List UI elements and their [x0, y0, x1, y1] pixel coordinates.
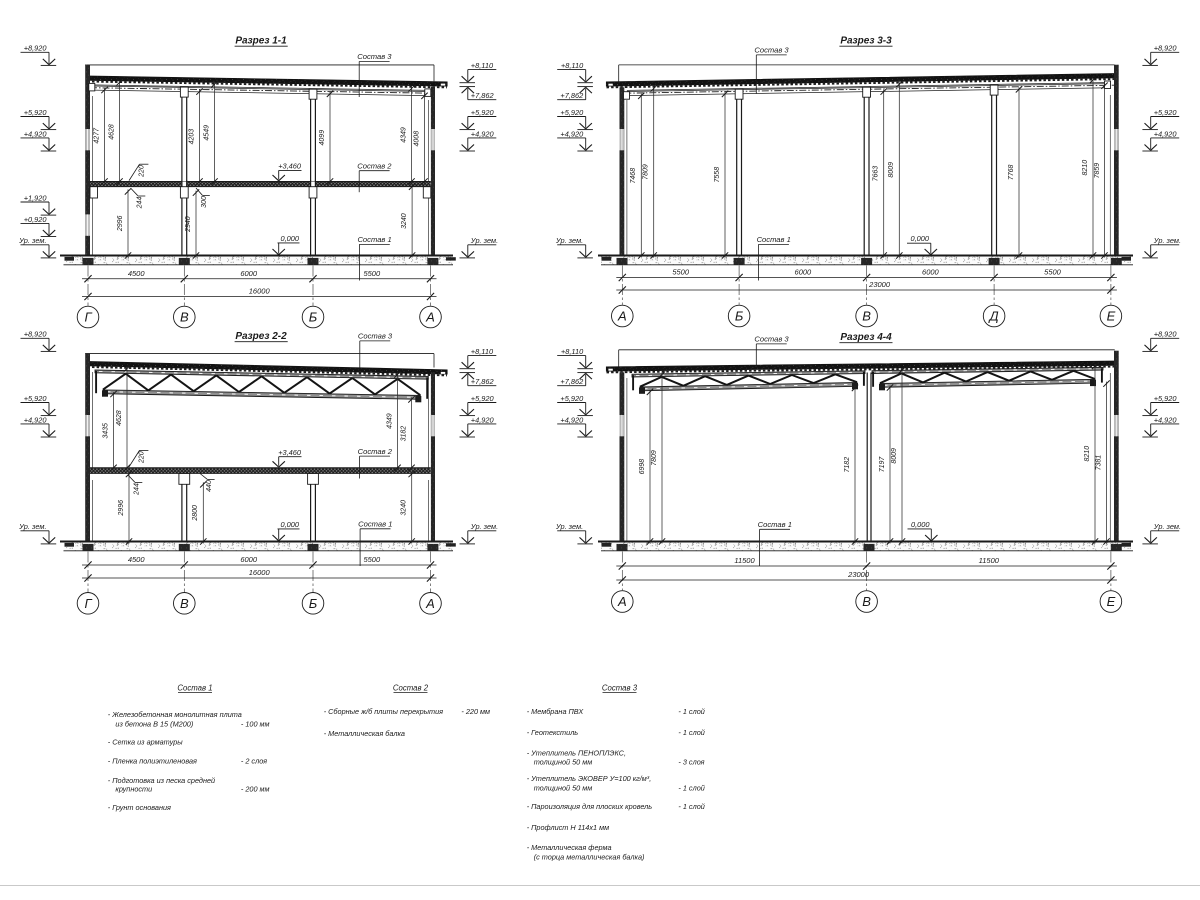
svg-text:4099: 4099 [319, 130, 326, 146]
svg-text:+8,920: +8,920 [1154, 44, 1178, 53]
svg-text:+8,110: +8,110 [471, 61, 494, 70]
svg-text:В: В [862, 594, 871, 609]
svg-text:+5,920: +5,920 [471, 108, 495, 117]
svg-text:0,000: 0,000 [911, 234, 930, 243]
svg-text:244: 244 [134, 483, 141, 496]
svg-text:2996: 2996 [118, 500, 125, 517]
svg-text:толщиной 50 мм: толщиной 50 мм [534, 758, 593, 767]
svg-text:Состав 1: Состав 1 [758, 520, 792, 529]
svg-text:16000: 16000 [249, 287, 271, 296]
svg-text:3182: 3182 [400, 426, 407, 442]
svg-text:Ур. зем.: Ур. зем. [555, 236, 583, 245]
svg-text:+5,920: +5,920 [471, 394, 495, 403]
svg-text:Д: Д [988, 309, 999, 324]
svg-text:+5,920: +5,920 [24, 394, 48, 403]
svg-text:Ур. зем.: Ур. зем. [1153, 236, 1181, 245]
svg-text:- Геотекстиль: - Геотекстиль [527, 728, 579, 737]
svg-text:Разрез 2-2: Разрез 2-2 [235, 331, 287, 342]
svg-text:+7,862: +7,862 [560, 91, 583, 100]
svg-text:+8,110: +8,110 [561, 61, 584, 70]
svg-text:- 100 мм: - 100 мм [241, 720, 270, 729]
svg-text:Ур. зем.: Ур. зем. [1153, 522, 1181, 531]
svg-text:Разрез 1-1: Разрез 1-1 [235, 36, 287, 47]
svg-text:- 200 мм: - 200 мм [241, 785, 270, 794]
svg-text:Состав 1: Состав 1 [757, 235, 791, 244]
svg-text:- Утеплитель ЭКОВЕР У=100 кг/м: - Утеплитель ЭКОВЕР У=100 кг/м³, [527, 774, 652, 783]
svg-text:+8,920: +8,920 [24, 44, 48, 53]
svg-text:6000: 6000 [795, 268, 813, 277]
svg-text:Б: Б [309, 310, 318, 325]
svg-text:+8,920: +8,920 [1154, 330, 1178, 339]
svg-text:+8,110: +8,110 [471, 347, 494, 356]
svg-text:+5,920: +5,920 [1154, 108, 1178, 117]
svg-text:7768: 7768 [1008, 165, 1015, 181]
svg-text:440: 440 [206, 480, 213, 492]
svg-text:3240: 3240 [401, 213, 408, 229]
svg-text:- 1 слой: - 1 слой [678, 802, 704, 811]
svg-text:+7,862: +7,862 [560, 377, 583, 386]
svg-text:+7,862: +7,862 [471, 377, 494, 386]
svg-text:244: 244 [137, 197, 144, 210]
svg-text:А: А [425, 596, 435, 611]
svg-text:23000: 23000 [847, 570, 870, 579]
svg-text:6000: 6000 [922, 268, 940, 277]
svg-text:+5,920: +5,920 [560, 394, 584, 403]
svg-text:Состав 1: Состав 1 [358, 520, 392, 529]
svg-text:4008: 4008 [413, 131, 420, 147]
svg-text:А: А [617, 309, 627, 324]
svg-text:7663: 7663 [873, 166, 880, 182]
svg-text:+5,920: +5,920 [24, 108, 48, 117]
svg-text:7468: 7468 [630, 168, 637, 184]
svg-text:4500: 4500 [128, 555, 146, 564]
svg-text:Б: Б [735, 309, 744, 324]
svg-text:толщиной 50 мм: толщиной 50 мм [534, 783, 593, 792]
svg-text:Е: Е [1107, 309, 1116, 324]
svg-text:8210: 8210 [1084, 446, 1091, 462]
svg-text:- Пленка полиэтиленовая: - Пленка полиэтиленовая [108, 757, 197, 766]
svg-text:Состав 3: Состав 3 [754, 335, 789, 344]
svg-text:11500: 11500 [979, 556, 1000, 565]
svg-text:- Мембрана ПВХ: - Мембрана ПВХ [527, 707, 585, 716]
svg-text:+0,920: +0,920 [24, 215, 48, 224]
svg-text:0,000: 0,000 [281, 520, 300, 529]
svg-text:- Металлическая балка: - Металлическая балка [324, 729, 405, 738]
svg-text:220: 220 [139, 451, 146, 464]
svg-text:8210: 8210 [1082, 160, 1089, 176]
svg-text:+3,460: +3,460 [278, 448, 302, 457]
svg-text:+7,862: +7,862 [471, 91, 494, 100]
svg-text:- 3 слоя: - 3 слоя [678, 758, 704, 767]
svg-text:5500: 5500 [363, 555, 381, 564]
svg-text:6000: 6000 [240, 555, 258, 564]
svg-text:8009: 8009 [891, 448, 898, 464]
svg-text:Состав 2: Состав 2 [393, 684, 429, 693]
svg-text:+5,920: +5,920 [1154, 394, 1178, 403]
svg-text:4628: 4628 [116, 410, 123, 426]
svg-text:+4,920: +4,920 [1154, 415, 1178, 424]
svg-text:+1,920: +1,920 [24, 193, 48, 202]
svg-text:+4,920: +4,920 [560, 129, 584, 138]
svg-text:Ур. зем.: Ур. зем. [555, 522, 583, 531]
svg-text:7809: 7809 [651, 450, 658, 466]
svg-text:4349: 4349 [400, 127, 407, 143]
svg-text:11500: 11500 [734, 556, 755, 565]
svg-text:- Металлическая ферма: - Металлическая ферма [527, 843, 612, 852]
svg-text:из бетона В 15 (М200): из бетона В 15 (М200) [115, 720, 193, 729]
svg-text:4549: 4549 [203, 125, 210, 141]
svg-text:В: В [862, 309, 871, 324]
svg-text:+4,920: +4,920 [471, 415, 495, 424]
svg-text:7809: 7809 [643, 164, 650, 180]
svg-text:крупности: крупности [115, 785, 152, 794]
svg-text:- Грунт основания: - Грунт основания [108, 803, 171, 812]
svg-text:5500: 5500 [363, 269, 381, 278]
svg-text:+3,460: +3,460 [278, 162, 302, 171]
svg-text:300: 300 [201, 196, 208, 208]
svg-text:220: 220 [139, 165, 146, 178]
svg-text:23000: 23000 [868, 280, 891, 289]
svg-text:+8,920: +8,920 [24, 330, 48, 339]
svg-text:- 1 слой: - 1 слой [678, 728, 704, 737]
svg-text:4628: 4628 [108, 124, 115, 140]
svg-text:8009: 8009 [888, 162, 895, 178]
svg-text:- 2 слоя: - 2 слоя [241, 757, 267, 766]
svg-text:+4,920: +4,920 [24, 415, 48, 424]
svg-text:Г: Г [84, 596, 92, 611]
svg-text:4277: 4277 [93, 127, 100, 144]
svg-text:7558: 7558 [714, 167, 721, 183]
svg-text:- Сетка из арматуры: - Сетка из арматуры [108, 737, 184, 746]
svg-text:7381: 7381 [1095, 455, 1102, 471]
svg-text:Г: Г [84, 310, 92, 325]
svg-text:- Железобетонная монолитная п: - Железобетонная монолитная плита [108, 710, 242, 719]
svg-text:6000: 6000 [240, 269, 258, 278]
svg-text:0,000: 0,000 [281, 234, 300, 243]
svg-text:- 1 слой: - 1 слой [678, 783, 704, 792]
svg-text:3435: 3435 [102, 423, 109, 439]
svg-text:Состав 3: Состав 3 [358, 332, 393, 341]
svg-text:4349: 4349 [386, 413, 393, 429]
svg-text:- Сборные ж/б плиты перекрытия: - Сборные ж/б плиты перекрытия [324, 707, 443, 716]
svg-text:7197: 7197 [879, 456, 886, 473]
svg-text:+4,920: +4,920 [471, 129, 495, 138]
svg-text:+4,920: +4,920 [24, 129, 48, 138]
svg-text:Разрез 3-3: Разрез 3-3 [840, 36, 892, 47]
svg-text:Состав 3: Состав 3 [357, 52, 392, 61]
svg-text:А: А [617, 594, 627, 609]
svg-text:Состав 2: Состав 2 [357, 161, 392, 170]
svg-text:Е: Е [1107, 594, 1116, 609]
svg-text:- Подготовка из песка средней: - Подготовка из песка средней [108, 776, 215, 785]
svg-text:+5,920: +5,920 [560, 108, 584, 117]
svg-text:Состав 1: Состав 1 [177, 684, 212, 693]
svg-text:5500: 5500 [1044, 268, 1062, 277]
svg-text:5500: 5500 [672, 268, 690, 277]
svg-text:7182: 7182 [844, 457, 851, 473]
svg-text:- Профлист Н 114х1 мм: - Профлист Н 114х1 мм [527, 823, 609, 832]
svg-text:Состав 3: Состав 3 [602, 684, 638, 693]
svg-text:Ур. зем.: Ур. зем. [470, 236, 498, 245]
svg-text:6998: 6998 [639, 459, 646, 475]
svg-text:(с торца металлическая балка): (с торца металлическая балка) [534, 852, 645, 861]
svg-text:Ур. зем.: Ур. зем. [18, 522, 46, 531]
svg-text:В: В [180, 310, 189, 325]
svg-text:В: В [180, 596, 189, 611]
svg-text:3240: 3240 [401, 500, 408, 516]
svg-text:- 1 слой: - 1 слой [678, 707, 704, 716]
svg-text:+4,920: +4,920 [560, 415, 584, 424]
svg-text:4500: 4500 [128, 269, 146, 278]
svg-text:Состав 3: Состав 3 [754, 46, 789, 55]
svg-text:+4,920: +4,920 [1154, 129, 1178, 138]
svg-text:А: А [425, 310, 435, 325]
svg-text:+8,110: +8,110 [561, 347, 584, 356]
svg-text:Разрез 4-4: Разрез 4-4 [840, 332, 892, 343]
svg-text:2996: 2996 [117, 216, 124, 233]
svg-text:Ур. зем.: Ур. зем. [18, 236, 46, 245]
svg-text:2800: 2800 [192, 505, 199, 522]
svg-text:4203: 4203 [188, 129, 195, 145]
svg-text:Состав 1: Состав 1 [357, 235, 391, 244]
svg-text:- Пароизоляция для плоских кро: - Пароизоляция для плоских кровель [527, 802, 653, 811]
svg-text:0,000: 0,000 [911, 520, 930, 529]
svg-text:Ур. зем.: Ур. зем. [470, 522, 498, 531]
svg-text:Б: Б [309, 596, 318, 611]
svg-text:Состав 2: Состав 2 [358, 447, 393, 456]
svg-text:7859: 7859 [1094, 163, 1101, 179]
svg-text:2940: 2940 [185, 216, 192, 233]
svg-text:- Утеплитель ПЕНОПЛЭКС,: - Утеплитель ПЕНОПЛЭКС, [527, 748, 626, 757]
svg-text:- 220 мм: - 220 мм [461, 707, 490, 716]
svg-text:16000: 16000 [249, 568, 271, 577]
